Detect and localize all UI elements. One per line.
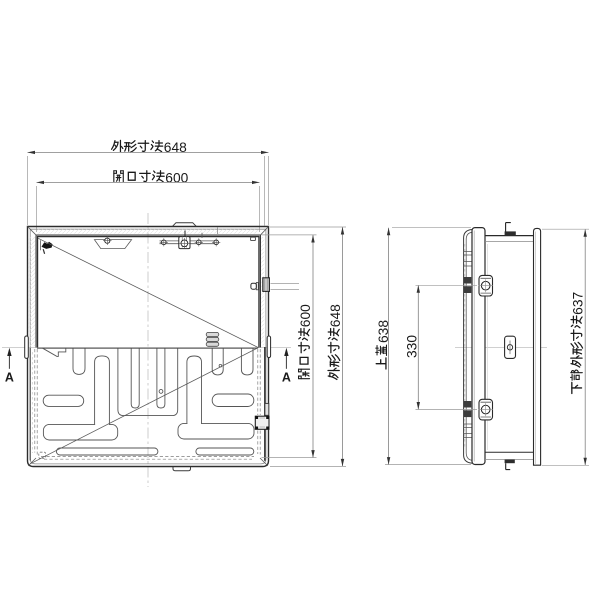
svg-text:A: A <box>5 371 14 385</box>
svg-text:638: 638 <box>376 320 391 343</box>
svg-text:330: 330 <box>405 335 420 358</box>
svg-text:600: 600 <box>165 170 188 185</box>
svg-text:600: 600 <box>298 304 313 327</box>
svg-text:A: A <box>282 371 291 385</box>
svg-text:637: 637 <box>571 292 586 315</box>
svg-text:648: 648 <box>328 304 343 327</box>
svg-text:648: 648 <box>164 140 187 155</box>
